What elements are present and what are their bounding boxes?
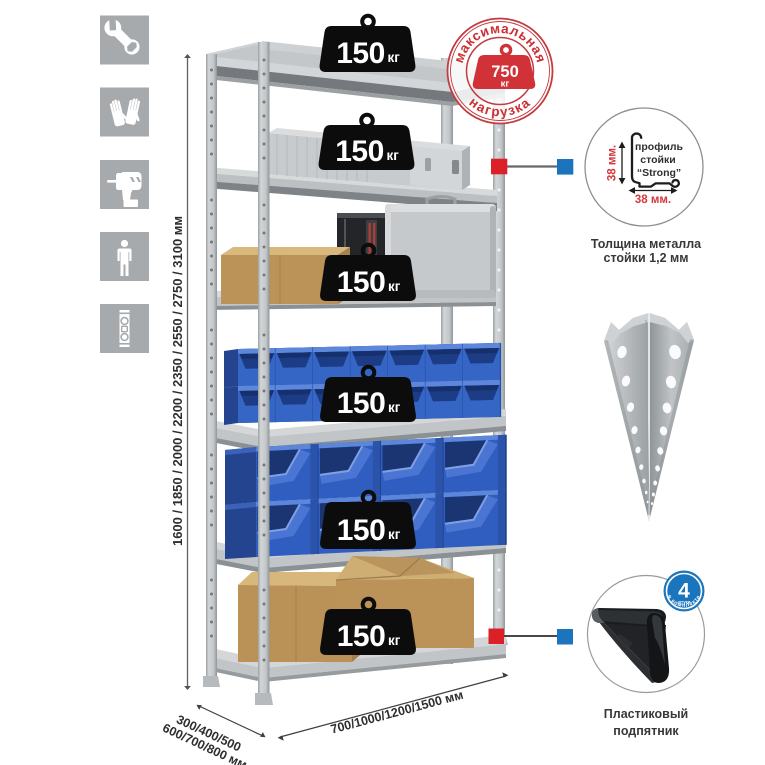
svg-text:кг: кг	[388, 50, 401, 65]
svg-text:стойки 1,2 мм: стойки 1,2 мм	[604, 251, 689, 265]
svg-text:1600 / 1850 / 2000 / 2200 / 23: 1600 / 1850 / 2000 / 2200 / 2350 / 2550 …	[170, 216, 185, 546]
svg-text:38 мм.: 38 мм.	[607, 145, 619, 181]
svg-text:стойки: стойки	[640, 154, 675, 166]
svg-text:150: 150	[337, 620, 386, 653]
svg-text:“Strong”: “Strong”	[637, 167, 681, 179]
svg-text:кг: кг	[388, 279, 401, 294]
svg-text:кг: кг	[388, 400, 401, 415]
svg-text:150: 150	[337, 387, 386, 420]
svg-text:кг: кг	[388, 527, 401, 542]
svg-text:700/1000/1200/1500 мм: 700/1000/1200/1500 мм	[329, 688, 465, 737]
svg-text:38 мм.: 38 мм.	[635, 194, 671, 206]
svg-text:Пластиковый: Пластиковый	[604, 707, 688, 721]
svg-text:Толщина металла: Толщина металла	[591, 237, 702, 251]
svg-text:150: 150	[337, 514, 386, 547]
svg-text:150: 150	[337, 266, 386, 299]
svg-text:кг: кг	[501, 79, 510, 90]
svg-text:профиль: профиль	[635, 141, 683, 153]
svg-text:кг: кг	[387, 148, 400, 163]
svg-text:150: 150	[336, 37, 385, 70]
svg-text:150: 150	[335, 135, 384, 168]
svg-text:подпятник: подпятник	[613, 724, 679, 738]
svg-text:кг: кг	[388, 633, 401, 648]
